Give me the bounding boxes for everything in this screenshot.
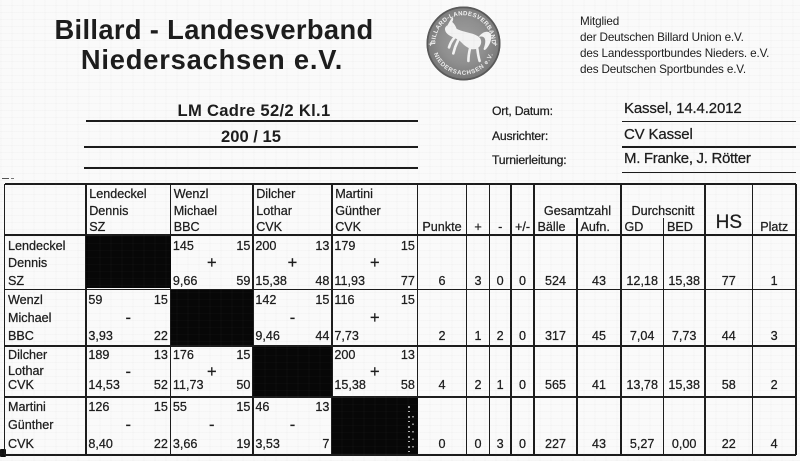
svg-text:+: + [493, 39, 497, 48]
svg-text:+: + [428, 39, 432, 48]
